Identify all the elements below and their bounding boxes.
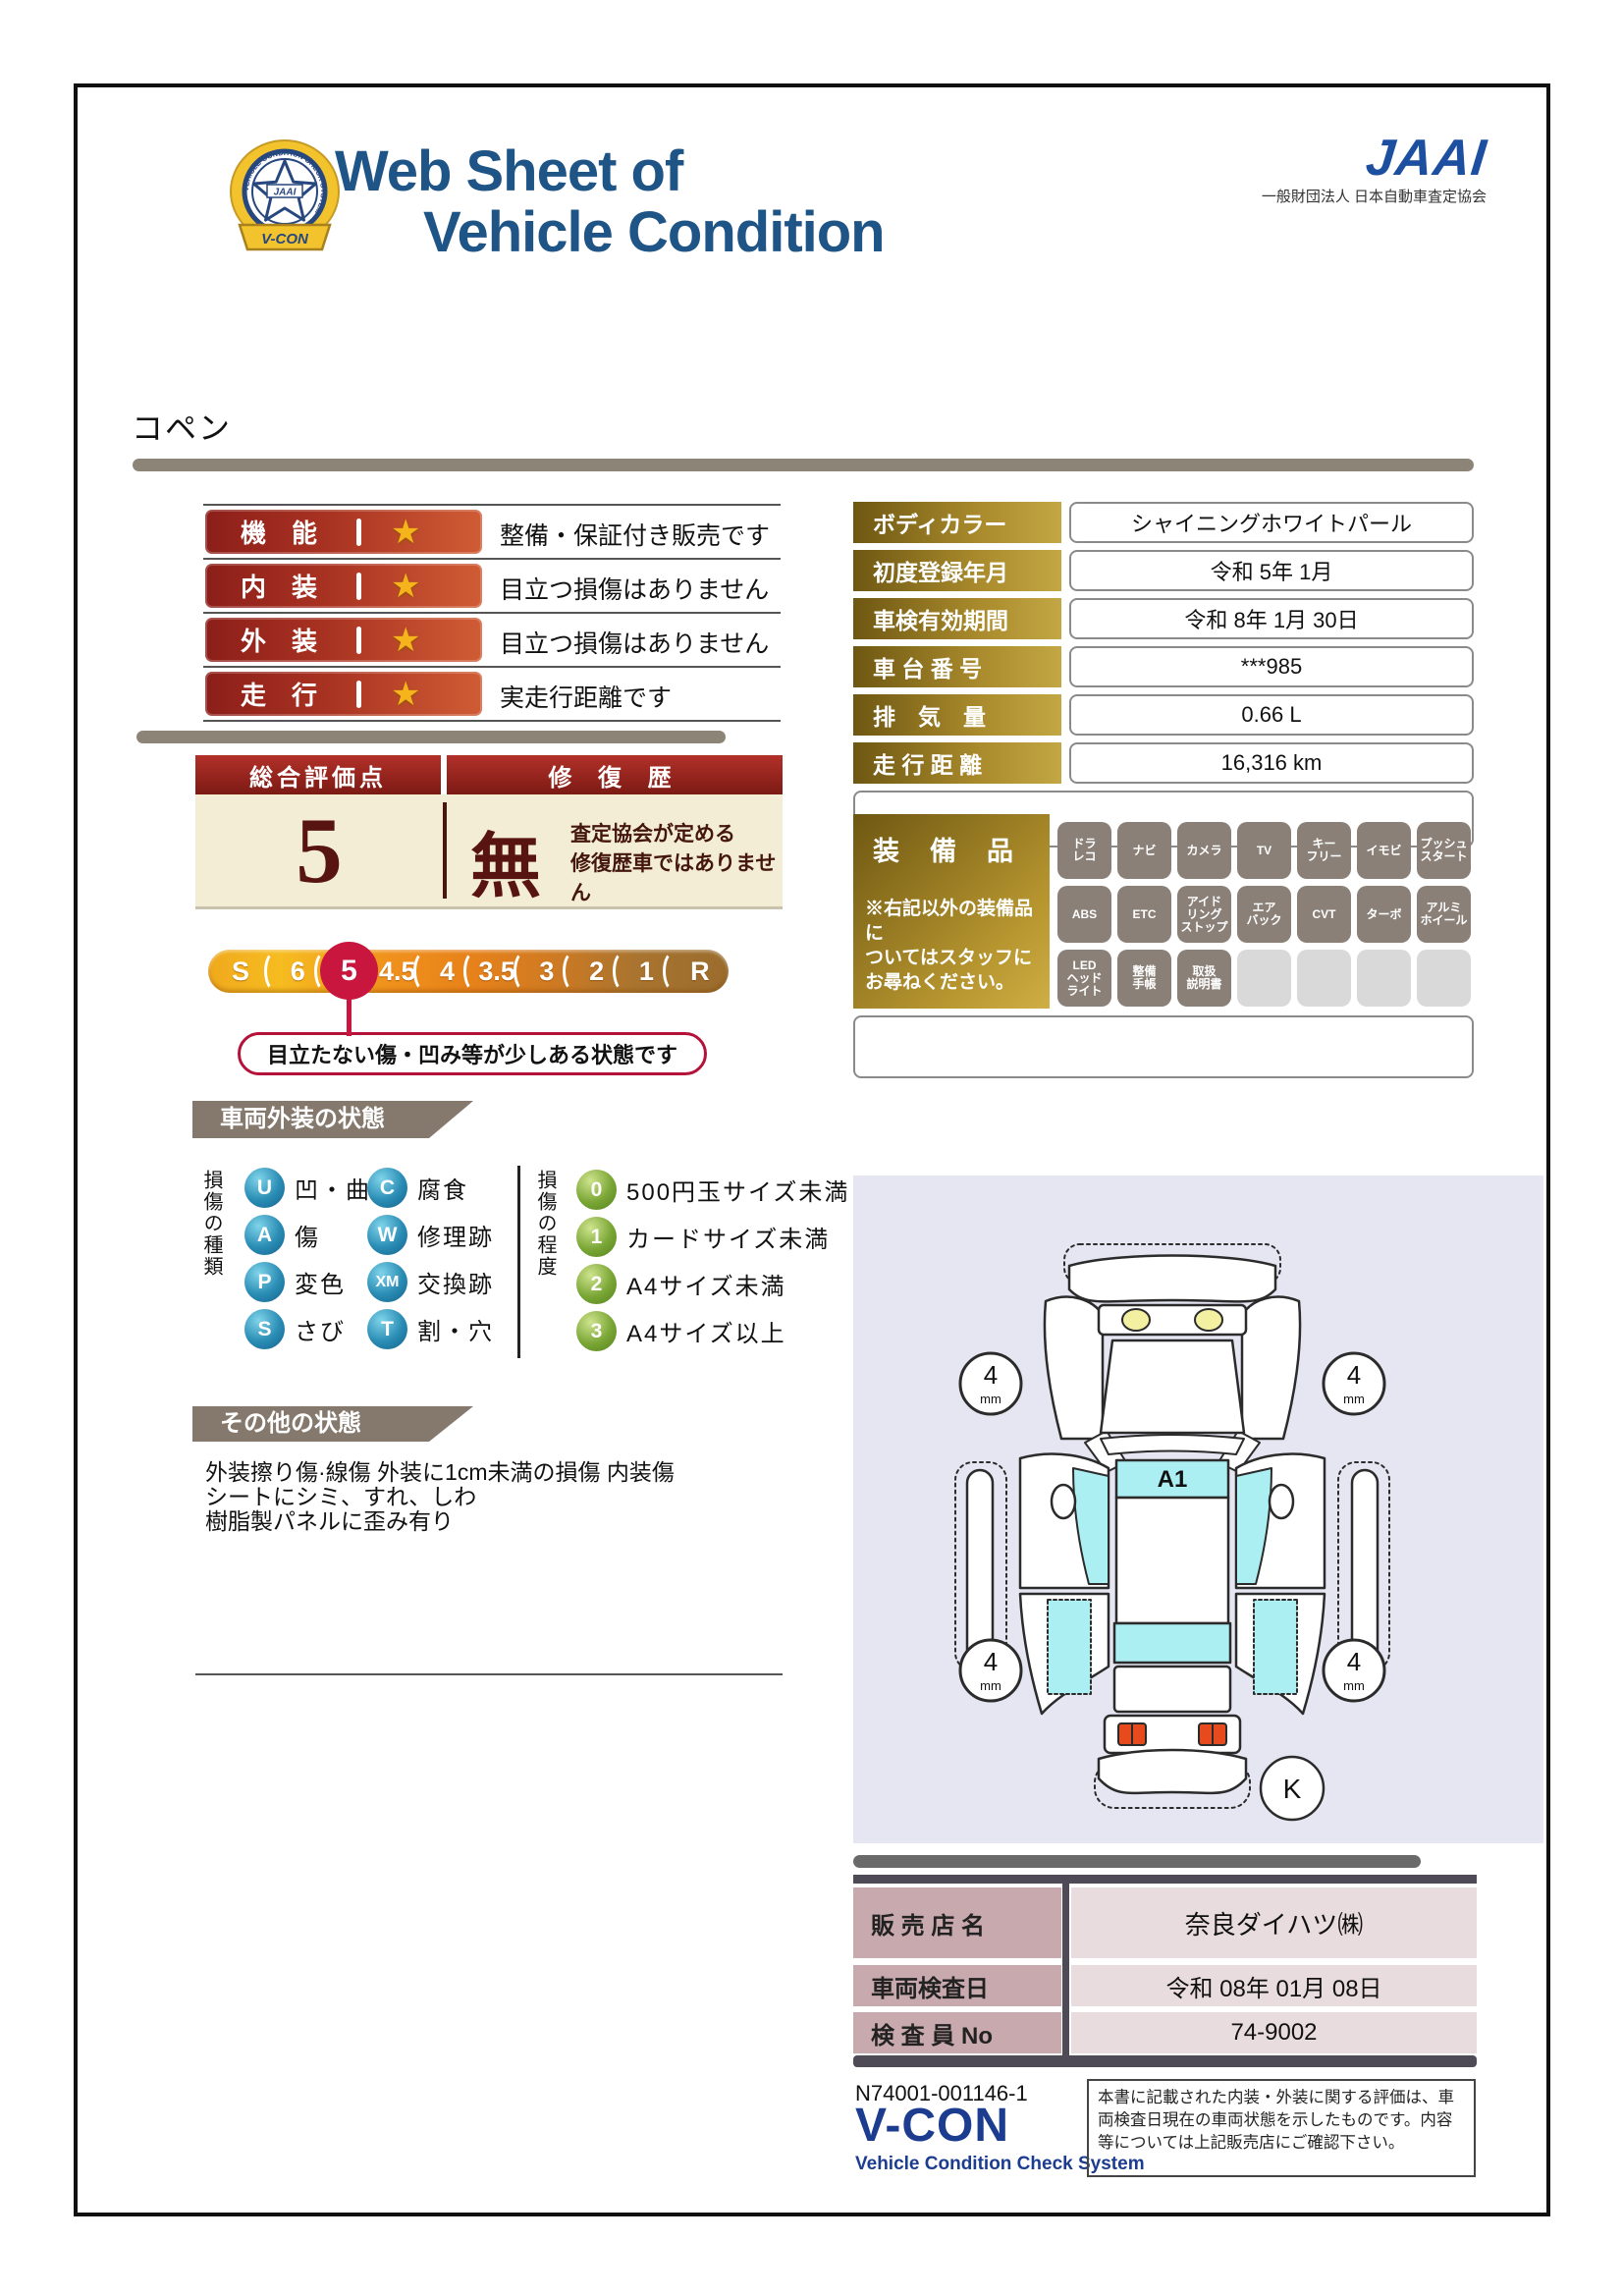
other-state-line: 外装擦り傷·線傷 外装に1cm未満の損傷 内装傷 <box>205 1460 794 1485</box>
equipment-badge: TV <box>1237 822 1291 879</box>
legend-item: U凹・曲 <box>244 1168 371 1208</box>
other-state-banner: その他の状態 <box>192 1406 473 1442</box>
overall-score-title: 総合評価点 <box>195 758 441 793</box>
vcon-badge-ribbon-label: V-CON <box>261 231 309 247</box>
overall-score-value: 5 <box>195 796 443 904</box>
rating-comment: 目立つ損傷はありません <box>500 571 769 606</box>
equipment-badge: エア バック <box>1237 886 1291 943</box>
damage-label: 交換跡 <box>417 1265 494 1299</box>
badge-divider <box>356 519 361 546</box>
degree-code-badge: 3 <box>576 1311 617 1351</box>
dealer-table-divider <box>1062 1875 1069 2065</box>
rear-window <box>1114 1623 1230 1663</box>
rating-badge: 外 装 ★ <box>205 618 482 662</box>
equipment-badge: ターボ <box>1357 886 1411 943</box>
legend-item: W修理跡 <box>367 1215 494 1255</box>
inspection-date-label: 車両検査日 <box>853 1965 1061 2006</box>
repair-note-line2: 修復歴車ではありません <box>570 849 783 908</box>
equipment-empty-box <box>853 1015 1474 1078</box>
rating-row-function: 機 能 ★ 整備・保証付き販売です <box>203 506 781 560</box>
headlight-right <box>1195 1309 1222 1331</box>
damage-label: 凹・曲 <box>295 1171 371 1205</box>
scale-segment: R <box>672 957 729 987</box>
star-icon: ★ <box>391 516 420 549</box>
equipment-badge: 取扱 説明書 <box>1177 950 1231 1007</box>
equipment-note: ※右記以外の装備品に ついてはスタッフに お尋ねください。 <box>865 897 1050 995</box>
segment-arc <box>463 951 486 992</box>
exterior-state-banner: 車両外装の状態 <box>192 1101 473 1138</box>
damage-code-badge: S <box>244 1309 285 1349</box>
equipment-badge-empty <box>1357 950 1411 1007</box>
equipment-badge: プッシュ スタート <box>1417 822 1471 879</box>
equipment-badge: キー フリー <box>1297 822 1351 879</box>
equipment-badge: ナビ <box>1117 822 1171 879</box>
segment-arc <box>514 951 536 992</box>
rating-row-exterior: 外 装 ★ 目立つ損傷はありません <box>203 614 781 668</box>
jaai-logo: JAAI <box>1287 129 1489 188</box>
scale-value: R <box>690 957 710 987</box>
equipment-badge-empty <box>1237 950 1291 1007</box>
badge-divider <box>356 627 361 654</box>
info-value-inspection-valid: 令和 8年 1月 30日 <box>1069 598 1474 639</box>
star-icon: ★ <box>391 570 420 603</box>
damage-kind-header: 損傷の種類 <box>197 1170 226 1376</box>
inspector-no-label: 検 査 員 No <box>853 2012 1061 2053</box>
inspection-date-value: 令和 08年 01月 08日 <box>1071 1965 1477 2006</box>
rating-list: 機 能 ★ 整備・保証付き販売です 内 装 ★ 目立つ損傷はありません 外 装 … <box>203 504 781 722</box>
side-sill <box>967 1470 993 1663</box>
rating-label: 内 装 <box>205 568 352 604</box>
info-label-inspection-valid: 車検有効期間 <box>853 598 1061 639</box>
equipment-panel: 装 備 品 ※右記以外の装備品に ついてはスタッフに お尋ねください。 <box>853 814 1050 1009</box>
rating-label: 外 装 <box>205 622 352 658</box>
rating-comment: 目立つ損傷はありません <box>500 625 769 660</box>
degree-label: 500円玉サイズ未満 <box>626 1173 849 1207</box>
degree-label: A4サイズ以上 <box>626 1314 786 1348</box>
scale-value: 2 <box>589 957 604 987</box>
damage-code-badge: U <box>244 1168 285 1208</box>
scale-value: S <box>232 957 249 987</box>
rating-row-mileage: 走 行 ★ 実走行距離です <box>203 668 781 722</box>
sheet-frame: VEHICLE CONDITION CHECK SYSTEM JAAI V-CO… <box>74 83 1550 2216</box>
rear-bumper <box>1099 1750 1246 1793</box>
badge-divider <box>356 573 361 600</box>
info-label-first-registration: 初度登録年月 <box>853 550 1061 591</box>
segment-arc <box>563 951 585 992</box>
rating-label: 走 行 <box>205 676 352 712</box>
marker-stem <box>347 997 352 1036</box>
vcon-logo: V-CON <box>855 2099 1009 2153</box>
degree-code-badge: 0 <box>576 1170 617 1210</box>
jaai-org-name: 一般財団法人 日本自動車査定協会 <box>1192 186 1487 206</box>
divider-bar-left <box>136 731 726 743</box>
rating-row-interior: 内 装 ★ 目立つ損傷はありません <box>203 560 781 614</box>
front-panel <box>1099 1305 1246 1335</box>
tire-depth-unit: mm <box>980 1392 1001 1406</box>
equipment-row: LED ヘッド ライト 整備 手帳 取扱 説明書 <box>1057 950 1476 1007</box>
segment-arc <box>264 951 287 992</box>
legend-item: A傷 <box>244 1215 320 1255</box>
legend-item: P変色 <box>244 1262 346 1302</box>
body-divider <box>443 802 447 899</box>
inspector-no-value: 74-9002 <box>1071 2012 1477 2053</box>
info-value-chassis-number: ***985 <box>1069 646 1474 687</box>
model-name: コペン <box>132 404 232 449</box>
star-icon: ★ <box>391 624 420 657</box>
legend-item: Sさび <box>244 1309 346 1349</box>
damage-label: 傷 <box>295 1218 320 1252</box>
segment-arc <box>663 951 685 992</box>
other-state-text: 外装擦り傷·線傷 外装に1cm未満の損傷 内装傷 シートにシミ、すれ、しわ 樹脂… <box>205 1460 794 1534</box>
damage-code-badge: A <box>244 1215 285 1255</box>
info-value-displacement: 0.66 L <box>1069 694 1474 736</box>
equipment-badge: アルミ ホイール <box>1417 886 1471 943</box>
equipment-badge-empty <box>1417 950 1471 1007</box>
damage-label: 腐食 <box>417 1171 468 1205</box>
scale-value: 6 <box>291 957 305 987</box>
info-value-body-color: シャイニングホワイトパール <box>1069 502 1474 543</box>
equipment-badge-empty <box>1297 950 1351 1007</box>
scale-value: 3 <box>539 957 554 987</box>
tire-depth-value: 4 <box>984 1360 998 1390</box>
repair-history-title: 修 復 歴 <box>447 758 783 793</box>
other-state-line: シートにシミ、すれ、しわ <box>205 1485 794 1509</box>
sheet-title-line1: Web Sheet of <box>335 138 682 204</box>
equipment-title: 装 備 品 <box>873 830 1015 868</box>
equipment-badge: 整備 手帳 <box>1117 950 1171 1007</box>
repair-history-value: 無 <box>470 808 541 911</box>
rating-comment: 実走行距離です <box>500 679 672 714</box>
rating-comment: 整備・保証付き販売です <box>500 517 770 552</box>
windshield <box>1101 1435 1244 1454</box>
legend-item: 1カードサイズ未満 <box>576 1217 830 1257</box>
degree-label: カードサイズ未満 <box>626 1220 830 1254</box>
equipment-badge: カメラ <box>1177 822 1231 879</box>
damage-code-badge: T <box>367 1309 407 1349</box>
car-diagram-panel: A1 4 mm K <box>853 1175 1543 1843</box>
trunk-lid <box>1114 1667 1230 1712</box>
dealer-table-bottom-bar <box>853 2055 1477 2067</box>
damage-code-badge: W <box>367 1215 407 1255</box>
overall-score-header: 総合評価点 修 復 歴 <box>195 755 783 794</box>
legend-item: 0500円玉サイズ未満 <box>576 1170 849 1210</box>
score-scale: S 6 5 4.5 4 3.5 3 2 1 R 5 目立たない傷・凹み等が少しあ… <box>208 950 729 993</box>
damage-code-badge: P <box>244 1262 285 1302</box>
equipment-badge: LED ヘッド ライト <box>1057 950 1111 1007</box>
cabin-floor <box>1116 1498 1228 1623</box>
equipment-badge: ABS <box>1057 886 1111 943</box>
equipment-badge: CVT <box>1297 886 1351 943</box>
hood <box>1101 1340 1244 1433</box>
repair-note-line1: 査定協会が定める <box>570 820 783 849</box>
info-label-body-color: ボディカラー <box>853 502 1061 543</box>
equipment-badge: イモビ <box>1357 822 1411 879</box>
rating-badge: 走 行 ★ <box>205 672 482 716</box>
legend-item: 2A4サイズ未満 <box>576 1264 786 1304</box>
equipment-badge: ドラ レコ <box>1057 822 1111 879</box>
degree-code-badge: 1 <box>576 1217 617 1257</box>
equipment-row: ドラ レコ ナビ カメラ TV キー フリー イモビ プッシュ スタート <box>1057 822 1476 879</box>
quarter-glass <box>1048 1600 1091 1694</box>
info-label-displacement: 排 気 量 <box>853 694 1061 736</box>
damage-code-badge: C <box>367 1168 407 1208</box>
front-fender <box>1045 1297 1103 1439</box>
info-value-first-registration: 令和 5年 1月 <box>1069 550 1474 591</box>
score-scale-bar: S 6 5 4.5 4 3.5 3 2 1 R <box>208 950 729 993</box>
vcon-badge-logo: VEHICLE CONDITION CHECK SYSTEM JAAI V-CO… <box>225 138 345 258</box>
damage-label: 変色 <box>295 1265 346 1299</box>
legend-divider <box>517 1166 520 1358</box>
equipment-badge: アイド リング ストップ <box>1177 886 1231 943</box>
degree-label: A4サイズ未満 <box>626 1267 786 1301</box>
damage-code-badge: XM <box>367 1262 407 1302</box>
equipment-badge: ETC <box>1117 886 1171 943</box>
divider-bar-bottom <box>853 1855 1421 1868</box>
vcon-badge-star-text: JAAI <box>274 188 297 198</box>
damage-label: 割・穴 <box>417 1312 494 1346</box>
equipment-row: ABS ETC アイド リング ストップ エア バック CVT ターボ アルミ … <box>1057 886 1476 943</box>
scale-value: 4 <box>440 957 455 987</box>
damage-label: 修理跡 <box>417 1218 494 1252</box>
legend-item: XM交換跡 <box>367 1262 494 1302</box>
info-label-mileage: 走 行 距 離 <box>853 742 1061 784</box>
left-column-bottom-rule <box>195 1673 783 1675</box>
damage-label: さび <box>295 1312 346 1346</box>
selected-score-marker: 5 <box>320 942 378 1000</box>
roof-damage-mark: A1 <box>1158 1466 1188 1493</box>
dealer-name-value: 奈良ダイハツ㈱ <box>1071 1887 1477 1958</box>
star-icon: ★ <box>391 678 420 711</box>
legend-item: T割・穴 <box>367 1309 494 1349</box>
degree-code-badge: 2 <box>576 1264 617 1304</box>
legend-item: C腐食 <box>367 1168 468 1208</box>
badge-divider <box>356 681 361 708</box>
rating-label: 機 能 <box>205 514 352 550</box>
score-callout: 目立たない傷・凹み等が少しある状態です <box>238 1032 707 1075</box>
divider-bar-top <box>133 459 1474 471</box>
sheet-title-line2: Vehicle Condition <box>423 199 885 265</box>
front-bumper <box>1069 1256 1275 1302</box>
headlight-left <box>1122 1309 1150 1331</box>
scale-value: 1 <box>639 957 654 987</box>
dealer-name-label: 販 売 店 名 <box>853 1887 1061 1958</box>
segment-arc <box>413 951 436 992</box>
rating-badge: 機 能 ★ <box>205 510 482 554</box>
other-state-line: 樹脂製パネルに歪み有り <box>205 1509 794 1534</box>
overall-score-body: 5 無 査定協会が定める 修復歴車ではありません <box>195 794 783 909</box>
repair-history-note: 査定協会が定める 修復歴車ではありません <box>570 820 783 908</box>
disclaimer-box: 本書に記載された内装・外装に関する評価は、車両検査日現在の車両状態を示したもので… <box>1087 2079 1476 2177</box>
info-value-mileage: 16,316 km <box>1069 742 1474 784</box>
car-diagram: A1 4 mm K <box>853 1175 1543 1843</box>
info-label-chassis-number: 車 台 番 号 <box>853 646 1061 687</box>
legend-item: 3A4サイズ以上 <box>576 1311 786 1351</box>
door-mirror <box>1052 1485 1075 1518</box>
segment-arc <box>613 951 635 992</box>
dealer-table-top-bar <box>853 1875 1477 1884</box>
corner-mark: K <box>1283 1774 1302 1804</box>
damage-degree-header: 損傷の程度 <box>531 1170 560 1376</box>
rating-badge: 内 装 ★ <box>205 564 482 608</box>
